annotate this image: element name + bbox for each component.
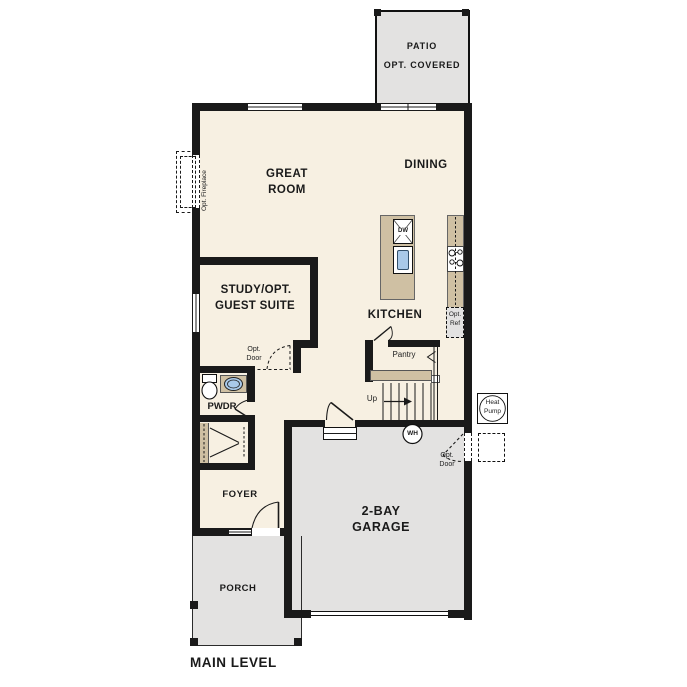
foyer-label: FOYER xyxy=(222,490,257,500)
porch-label: PORCH xyxy=(220,584,257,594)
front-door xyxy=(252,502,279,528)
kitchen-label: KITCHEN xyxy=(368,309,423,322)
dining-label: DINING xyxy=(404,159,447,172)
plan-linework xyxy=(0,0,687,687)
opt-fireplace-label: Opt. Fireplace xyxy=(201,170,208,211)
opt-ref-label-line1: Opt. xyxy=(449,311,461,318)
great-room-label-line2: ROOM xyxy=(268,184,306,197)
opt-ref-label-line2: Ref xyxy=(450,320,460,327)
stairs-up-arrow xyxy=(384,398,412,406)
garage-entry-door xyxy=(323,403,357,434)
heat-pump-label-line2: Pump xyxy=(484,408,501,415)
pwdr-label: PWDR xyxy=(207,402,236,412)
study-label-line1: STUDY/OPT. xyxy=(221,284,292,297)
patio-label: PATIO xyxy=(407,42,437,52)
level-label: MAIN LEVEL xyxy=(190,656,277,671)
up-label: Up xyxy=(367,395,377,404)
opt-door-study-label-line1: Opt. xyxy=(247,346,260,354)
opt-door-study-label-line2: Door xyxy=(246,355,261,363)
pwdr-sink xyxy=(225,378,243,391)
water-heater-label: WH xyxy=(407,430,418,437)
closet-double-doors xyxy=(210,428,239,457)
opt-door-garage-label-line2: Door xyxy=(439,461,454,469)
toilet-bowl xyxy=(202,382,217,399)
study-label-line2: GUEST SUITE xyxy=(215,300,295,313)
floor-plan: PATIO OPT. COVERED GREAT ROOM DINING STU… xyxy=(0,0,687,687)
pwdr-door xyxy=(235,400,252,420)
garage-label-line1: 2-BAY xyxy=(362,505,401,519)
patio-note: OPT. COVERED xyxy=(384,61,461,71)
garage-label-line2: GARAGE xyxy=(352,521,410,535)
heat-pump-label-line1: Heat xyxy=(486,399,500,406)
pantry-label: Pantry xyxy=(392,351,415,360)
closet-dashed-lines xyxy=(204,217,456,462)
dishwasher-label: DW xyxy=(397,228,409,235)
great-room-label-line1: GREAT xyxy=(266,168,308,181)
opt-door-garage-label-line1: Opt. xyxy=(440,452,453,460)
pantry-door xyxy=(374,327,392,341)
